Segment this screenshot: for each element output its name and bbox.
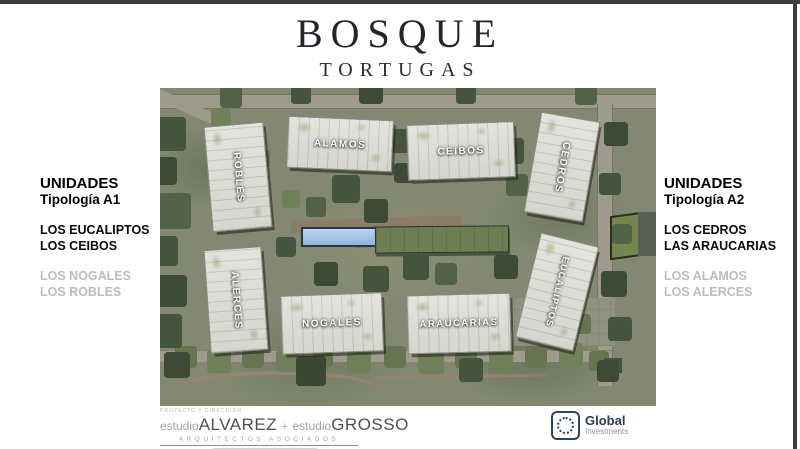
studio2-name: GROSSO bbox=[331, 415, 409, 434]
unit-name: LOS CEIBOS bbox=[40, 238, 165, 254]
left-typology-panel: UNIDADES Tipología A1 LOS EUCALIPTOS LOS… bbox=[40, 176, 165, 300]
siteplan-map: ROBLES ALAMOS CEIBOS CEDROS ALERCES NOGA… bbox=[160, 88, 656, 406]
unit-name: LOS EUCALIPTOS bbox=[40, 222, 165, 238]
studio-tagline: ARQUITECTOS ASOCIADOS bbox=[160, 436, 358, 446]
unit-name: LOS CEDROS bbox=[664, 222, 796, 238]
window-top-border bbox=[0, 0, 800, 4]
building-label: ALAMOS bbox=[287, 117, 393, 171]
gray-structure bbox=[638, 212, 656, 256]
right-panel-typology: Tipología A2 bbox=[664, 192, 796, 208]
left-panel-typology: Tipología A1 bbox=[40, 192, 165, 208]
unit-name-dim: LOS ROBLES bbox=[40, 284, 165, 300]
right-featured-units: LOS CEDROS LAS ARAUCARIAS bbox=[664, 222, 796, 254]
brand-subname: Investments bbox=[585, 426, 628, 437]
credit-label: PROYECTO Y DIRECCION bbox=[160, 408, 370, 414]
swimming-pool bbox=[301, 227, 379, 247]
project-subtitle: TORTUGAS bbox=[0, 58, 800, 82]
building-nogales: NOGALES bbox=[280, 292, 384, 355]
brand-name: Global bbox=[585, 415, 628, 426]
unit-name-dim: LOS ALERCES bbox=[664, 284, 796, 300]
page-canvas: BOSQUE TORTUGAS UNIDADES Tipología A1 LO… bbox=[0, 0, 800, 449]
building-alerces: ALERCES bbox=[203, 246, 268, 354]
clubhouse-green-roof bbox=[375, 225, 509, 253]
unit-name-dim: LOS NOGALES bbox=[40, 268, 165, 284]
building-label: CEIBOS bbox=[407, 122, 515, 180]
global-investments-icon bbox=[551, 411, 580, 440]
studio-names: estudioALVAREZ + estudioGROSSO bbox=[160, 415, 370, 435]
unit-name-dim: LOS ALAMOS bbox=[664, 268, 796, 284]
building-robles: ROBLES bbox=[203, 122, 272, 233]
project-header: BOSQUE TORTUGAS bbox=[0, 12, 800, 82]
studio1-prefix: estudio bbox=[160, 419, 199, 433]
left-featured-units: LOS EUCALIPTOS LOS CEIBOS bbox=[40, 222, 165, 254]
building-alamos: ALAMOS bbox=[286, 116, 394, 173]
studios-separator: + bbox=[282, 421, 288, 433]
right-panel-heading: UNIDADES bbox=[664, 176, 796, 192]
dotted-circle-icon bbox=[557, 417, 574, 434]
building-label: NOGALES bbox=[281, 293, 383, 353]
building-label: ROBLES bbox=[205, 123, 272, 232]
utility-structure bbox=[604, 358, 622, 373]
building-araucarias: ARAUCARIAS bbox=[406, 293, 512, 355]
architects-credits: PROYECTO Y DIRECCION estudioALVAREZ + es… bbox=[160, 408, 370, 449]
right-other-units: LOS ALAMOS LOS ALERCES bbox=[664, 268, 796, 300]
left-panel-heading: UNIDADES bbox=[40, 176, 165, 192]
building-label: ALERCES bbox=[205, 247, 268, 353]
tree-cluster-dark bbox=[160, 88, 162, 90]
project-title: BOSQUE bbox=[0, 12, 800, 56]
building-ceibos: CEIBOS bbox=[406, 121, 516, 181]
studio2-prefix: estudio bbox=[293, 419, 332, 433]
global-investments-logo: Global Investments bbox=[551, 411, 628, 440]
right-typology-panel: UNIDADES Tipología A2 LOS CEDROS LAS ARA… bbox=[664, 176, 796, 300]
global-investments-wordmark: Global Investments bbox=[585, 415, 628, 437]
unit-name: LAS ARAUCARIAS bbox=[664, 238, 796, 254]
building-label: ARAUCARIAS bbox=[407, 294, 510, 354]
studio1-name: ALVAREZ bbox=[199, 415, 277, 434]
left-other-units: LOS NOGALES LOS ROBLES bbox=[40, 268, 165, 300]
road-north bbox=[160, 94, 656, 109]
